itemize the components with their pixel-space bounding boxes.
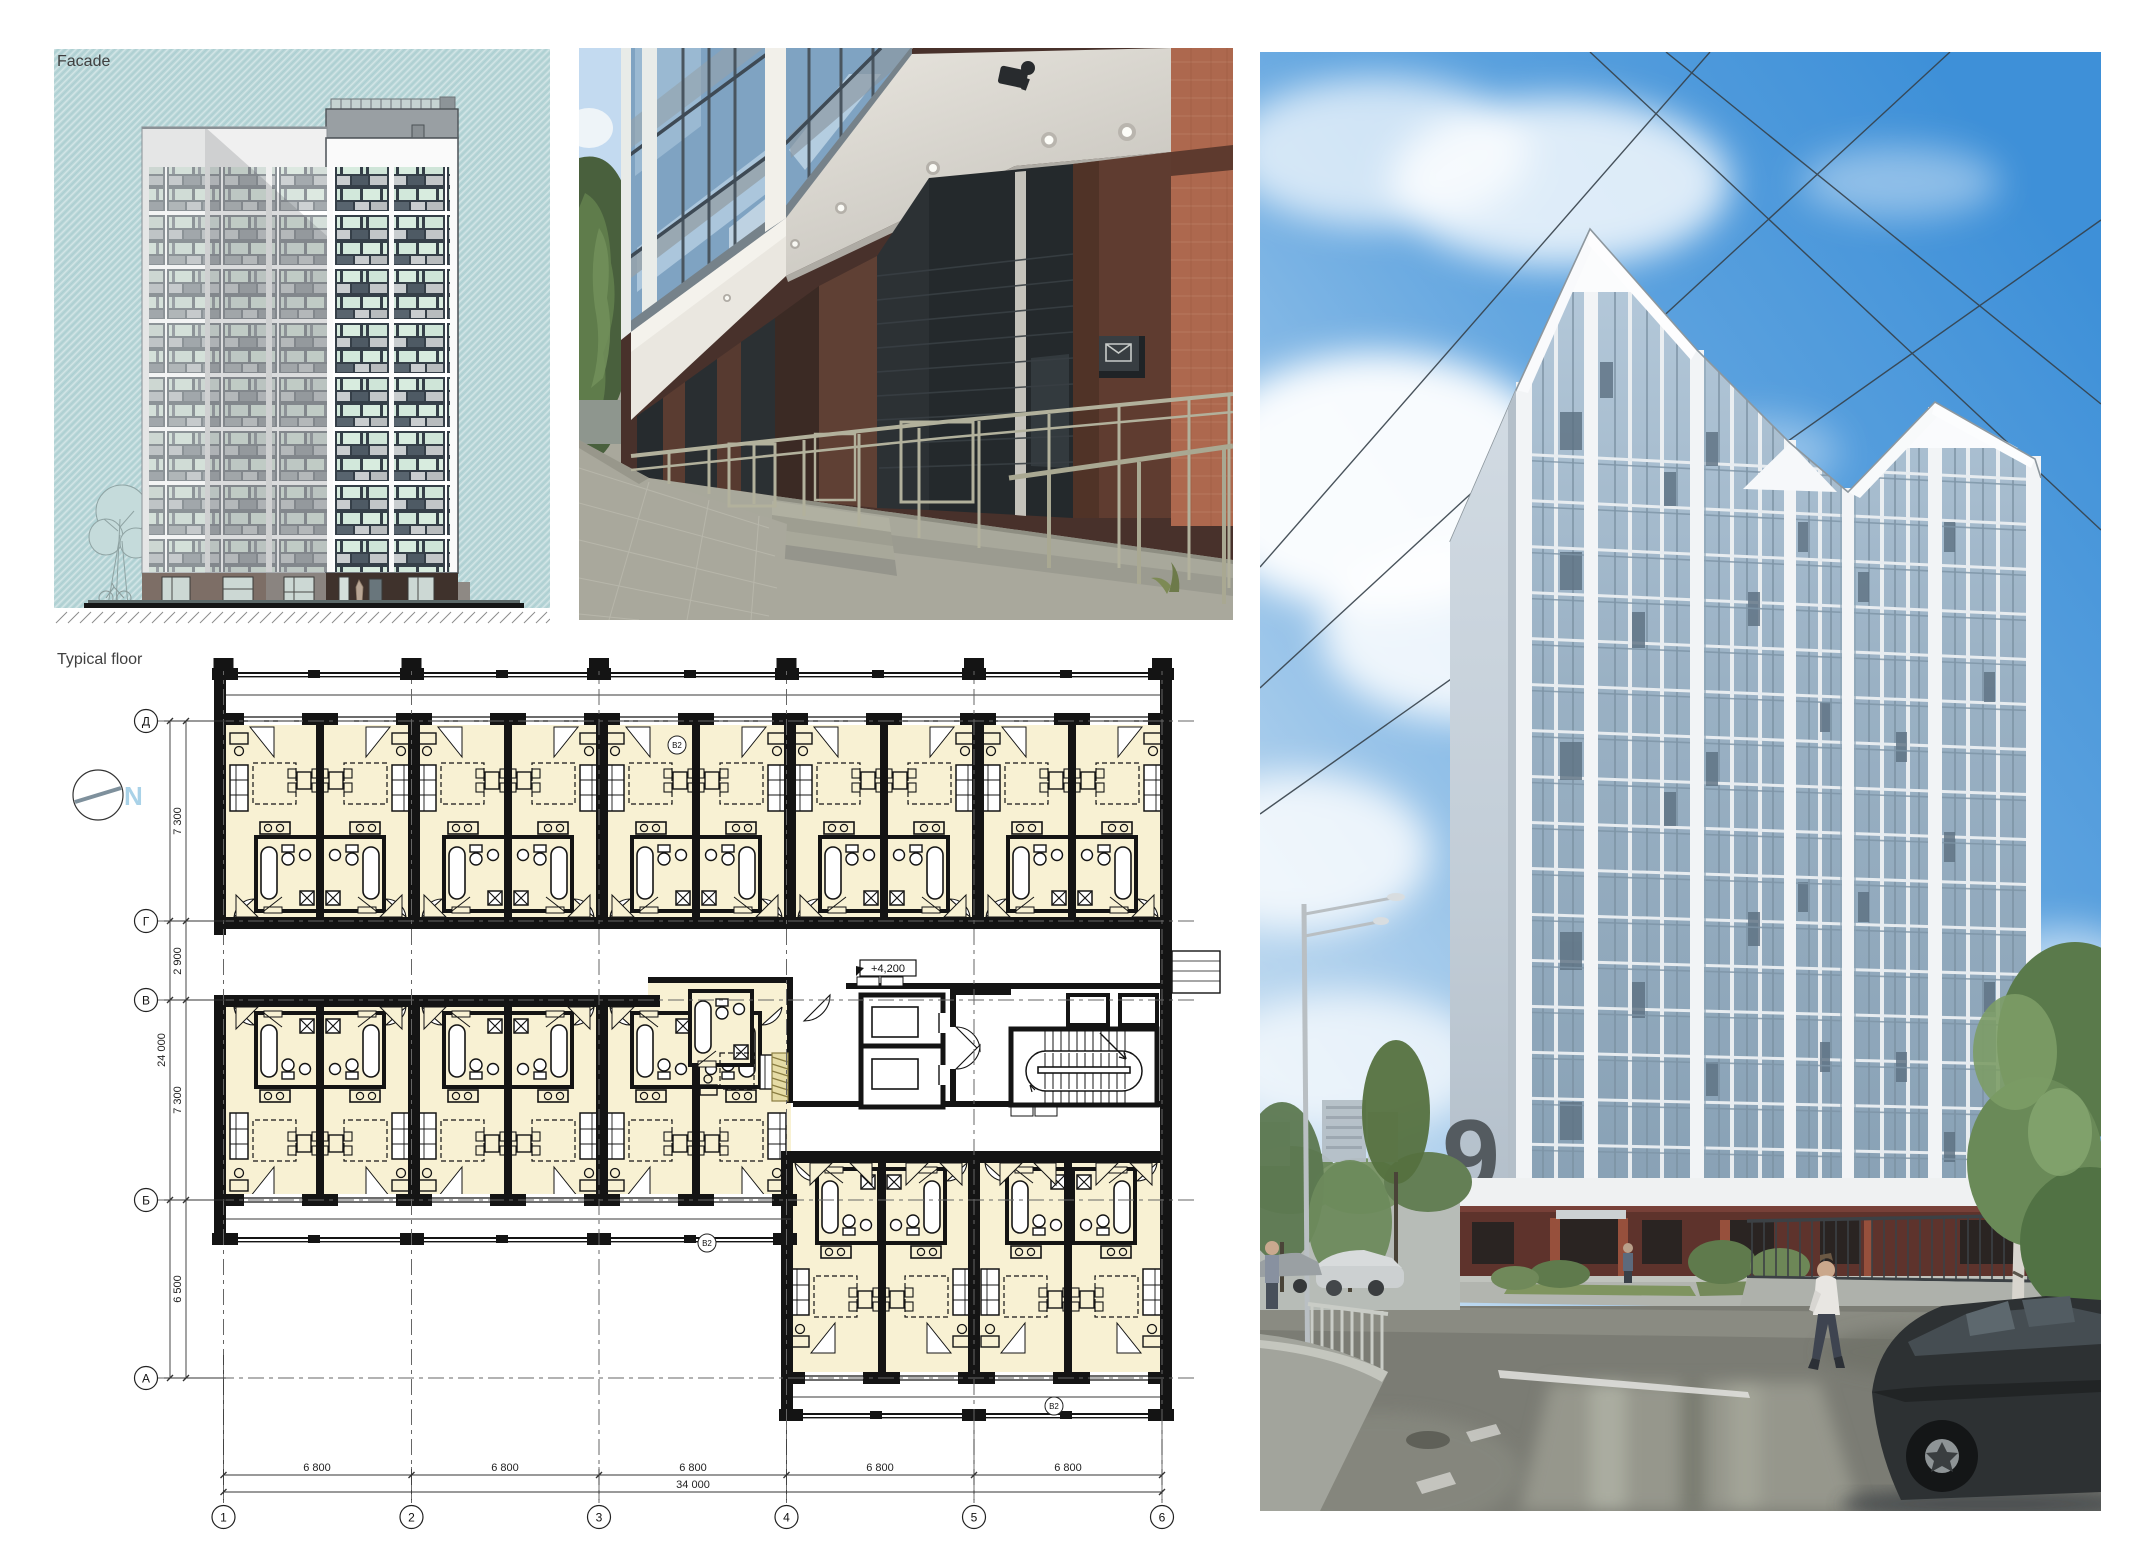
svg-text:1: 1 <box>220 1511 227 1525</box>
svg-text:B2: B2 <box>672 741 682 750</box>
svg-text:6 800: 6 800 <box>866 1462 894 1474</box>
svg-text:3: 3 <box>596 1511 603 1525</box>
svg-text:2: 2 <box>408 1511 415 1525</box>
svg-text:Д: Д <box>142 715 150 729</box>
svg-text:Г: Г <box>143 915 150 929</box>
svg-text:А: А <box>142 1372 150 1386</box>
svg-text:N: N <box>124 781 143 811</box>
svg-text:6 800: 6 800 <box>1054 1462 1082 1474</box>
svg-text:В: В <box>142 994 150 1008</box>
svg-text:5: 5 <box>971 1511 978 1525</box>
svg-text:B2: B2 <box>1049 1402 1059 1411</box>
svg-text:7 300: 7 300 <box>172 807 184 835</box>
svg-text:34 000: 34 000 <box>676 1479 710 1491</box>
svg-text:Б: Б <box>142 1194 150 1208</box>
svg-text:2 900: 2 900 <box>172 947 184 975</box>
svg-text:B2: B2 <box>702 1239 712 1248</box>
svg-text:6 800: 6 800 <box>491 1462 519 1474</box>
svg-text:24 000: 24 000 <box>156 1033 168 1067</box>
svg-text:6: 6 <box>1159 1511 1166 1525</box>
svg-text:+4,200: +4,200 <box>871 963 905 975</box>
svg-text:4: 4 <box>783 1511 790 1525</box>
svg-text:6 500: 6 500 <box>172 1275 184 1303</box>
svg-text:6 800: 6 800 <box>303 1462 331 1474</box>
svg-text:7 300: 7 300 <box>172 1086 184 1114</box>
svg-text:6 800: 6 800 <box>679 1462 707 1474</box>
